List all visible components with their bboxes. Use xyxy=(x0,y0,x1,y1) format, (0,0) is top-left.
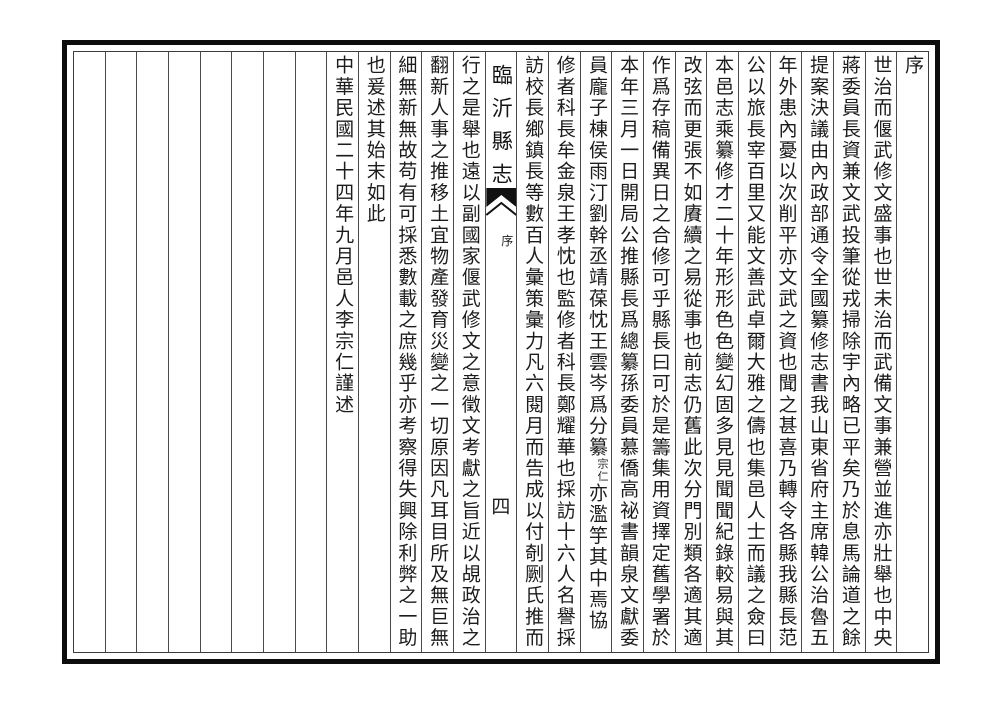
text-column: 修者科長牟金泉王孝忱也監修者科長鄭耀華也採訪十六人名譽採 xyxy=(548,52,580,652)
column-grid: 序世治而偃武修文盛事也世未治而武備文事兼營並進亦壯舉也中央蔣委員長資兼文武投筆從… xyxy=(73,51,929,653)
column-text: 也爰述其始末如此 xyxy=(361,52,388,652)
column-text-run: 改弦而更張不如賡續之易從事也前志仍舊此次分門別類各適其適 xyxy=(680,55,701,649)
column-text: 公以旅長宰百里又能文善武卓爾大雅之儔也集邑人士而議之僉曰 xyxy=(741,52,768,652)
column-text-run: 作爲存稿備異日之合修可乎縣長曰可於是籌集用資擇定舊學署於 xyxy=(649,55,670,649)
column-text: 作爲存稿備異日之合修可乎縣長曰可於是籌集用資擇定舊學署於 xyxy=(646,52,673,652)
column-text-run: 公以旅長宰百里又能文善武卓爾大雅之儔也集邑人士而議之僉曰 xyxy=(744,55,765,649)
center-fold-column: 臨沂縣志序四 xyxy=(485,52,517,652)
column-text-run: 世治而偃武修文盛事也世未治而武備文事兼營並進亦壯舉也中央 xyxy=(870,55,891,649)
column-text: 行之是舉也遠以副國家偃武修文之意徵文考獻之旨近以覘政治之 xyxy=(456,52,483,652)
text-column: 序 xyxy=(896,52,928,652)
column-text: 蔣委員長資兼文武投筆從戎掃除宇內略已平矣乃於息馬論道之餘 xyxy=(836,52,863,652)
column-text-run: 本邑志乘纂修才二十年形形色色變幻固多見見聞聞紀錄較易與其 xyxy=(712,55,733,649)
empty-column xyxy=(74,52,105,652)
fishtail-ornament-icon xyxy=(486,188,517,226)
column-text-run: 也爰述其始末如此 xyxy=(364,55,385,225)
column-text-run: 員龐子棟侯雨汀劉幹丞靖葆忱王雲岑爲分纂 xyxy=(586,55,607,458)
text-column: 也爰述其始末如此 xyxy=(358,52,390,652)
text-column: 行之是舉也遠以副國家偃武修文之意徵文考獻之旨近以覘政治之 xyxy=(453,52,485,652)
text-column: 本年三月一日開局公推縣長爲總纂孫委員慕僑高祕書韻泉文獻委 xyxy=(611,52,643,652)
empty-column xyxy=(136,52,168,652)
column-text: 訪校長鄉鎮長等數百人彙策彙力凡六閱月而告成以付剞劂氏推而 xyxy=(519,52,546,652)
page-border-frame: 序世治而偃武修文盛事也世未治而武備文事兼營並進亦壯舉也中央蔣委員長資兼文武投筆從… xyxy=(62,40,940,664)
text-column: 蔣委員長資兼文武投筆從戎掃除宇內略已平矣乃於息馬論道之餘 xyxy=(833,52,865,652)
text-column: 世治而偃武修文盛事也世未治而武備文事兼營並進亦壯舉也中央 xyxy=(865,52,897,652)
column-text-run: 訪校長鄉鎮長等數百人彙策彙力凡六閱月而告成以付剞劂氏推而 xyxy=(522,55,543,649)
column-text-run: 序 xyxy=(902,55,923,76)
column-text-run: 行之是舉也遠以副國家偃武修文之意徵文考獻之旨近以覘政治之 xyxy=(459,55,480,649)
column-text: 翻新人事之推移土宜物產發育災變之一切原因凡耳目所及無巨無 xyxy=(424,52,451,652)
column-text: 中華民國二十四年九月邑人李宗仁謹述 xyxy=(329,52,356,652)
text-column: 年外患內憂以次削平亦文武之資也聞之甚喜乃轉令各縣我縣長范 xyxy=(770,52,802,652)
column-text: 世治而偃武修文盛事也世未治而武備文事兼營並進亦壯舉也中央 xyxy=(867,52,894,652)
column-text-run: 亦濫竽其中焉協 xyxy=(586,483,607,631)
column-text: 員龐子棟侯雨汀劉幹丞靖葆忱王雲岑爲分纂宗仁亦濫竽其中焉協 xyxy=(582,52,610,652)
text-column: 公以旅長宰百里又能文善武卓爾大雅之儔也集邑人士而議之僉曰 xyxy=(738,52,770,652)
text-column: 改弦而更張不如賡續之易從事也前志仍舊此次分門別類各適其適 xyxy=(675,52,707,652)
inline-annotation: 宗仁 xyxy=(596,458,608,483)
column-text: 細無新無故苟有可採悉數載之庶幾乎亦考察得失興除利弊之一助 xyxy=(392,52,419,652)
text-column: 中華民國二十四年九月邑人李宗仁謹述 xyxy=(326,52,358,652)
column-text: 改弦而更張不如賡續之易從事也前志仍舊此次分門別類各適其適 xyxy=(677,52,704,652)
text-column: 提案決議由內政部通令全國纂修志書我山東省府主席韓公治魯五 xyxy=(801,52,833,652)
empty-column xyxy=(168,52,200,652)
column-text-run: 提案決議由內政部通令全國纂修志書我山東省府主席韓公治魯五 xyxy=(807,55,828,649)
page-number: 四 xyxy=(486,492,517,519)
text-column: 員龐子棟侯雨汀劉幹丞靖葆忱王雲岑爲分纂宗仁亦濫竽其中焉協 xyxy=(580,52,612,652)
column-text-run: 翻新人事之推移土宜物產發育災變之一切原因凡耳目所及無巨無 xyxy=(427,55,448,649)
column-text: 本年三月一日開局公推縣長爲總纂孫委員慕僑高祕書韻泉文獻委 xyxy=(614,52,641,652)
column-text-run: 修者科長牟金泉王孝忱也監修者科長鄭耀華也採訪十六人名譽採 xyxy=(554,55,575,649)
empty-column xyxy=(105,52,137,652)
fold-section-label: 序 xyxy=(501,232,513,249)
text-column: 細無新無故苟有可採悉數載之庶幾乎亦考察得失興除利弊之一助 xyxy=(390,52,422,652)
column-text-run: 蔣委員長資兼文武投筆從戎掃除宇內略已平矣乃於息馬論道之餘 xyxy=(839,55,860,649)
text-column: 訪校長鄉鎮長等數百人彙策彙力凡六閱月而告成以付剞劂氏推而 xyxy=(516,52,548,652)
text-column: 翻新人事之推移土宜物產發育災變之一切原因凡耳目所及無巨無 xyxy=(421,52,453,652)
empty-column xyxy=(263,52,295,652)
column-text-run: 年外患內憂以次削平亦文武之資也聞之甚喜乃轉令各縣我縣長范 xyxy=(775,55,796,649)
column-text: 序 xyxy=(899,52,926,652)
empty-column xyxy=(295,52,327,652)
empty-column xyxy=(231,52,263,652)
column-text-run: 中華民國二十四年九月邑人李宗仁謹述 xyxy=(332,55,353,415)
book-title: 臨沂縣志 xyxy=(486,55,517,205)
column-text: 修者科長牟金泉王孝忱也監修者科長鄭耀華也採訪十六人名譽採 xyxy=(551,52,578,652)
text-column: 作爲存稿備異日之合修可乎縣長曰可於是籌集用資擇定舊學署於 xyxy=(643,52,675,652)
column-text: 本邑志乘纂修才二十年形形色色變幻固多見見聞聞紀錄較易與其 xyxy=(709,52,736,652)
empty-column xyxy=(200,52,232,652)
column-text: 年外患內憂以次削平亦文武之資也聞之甚喜乃轉令各縣我縣長范 xyxy=(772,52,799,652)
column-text-run: 本年三月一日開局公推縣長爲總纂孫委員慕僑高祕書韻泉文獻委 xyxy=(617,55,638,649)
column-text-run: 細無新無故苟有可採悉數載之庶幾乎亦考察得失興除利弊之一助 xyxy=(395,55,416,649)
book-page-scan: 序世治而偃武修文盛事也世未治而武備文事兼營並進亦壯舉也中央蔣委員長資兼文武投筆從… xyxy=(0,0,1000,706)
column-text: 提案決議由內政部通令全國纂修志書我山東省府主席韓公治魯五 xyxy=(804,52,831,652)
text-column: 本邑志乘纂修才二十年形形色色變幻固多見見聞聞紀錄較易與其 xyxy=(706,52,738,652)
